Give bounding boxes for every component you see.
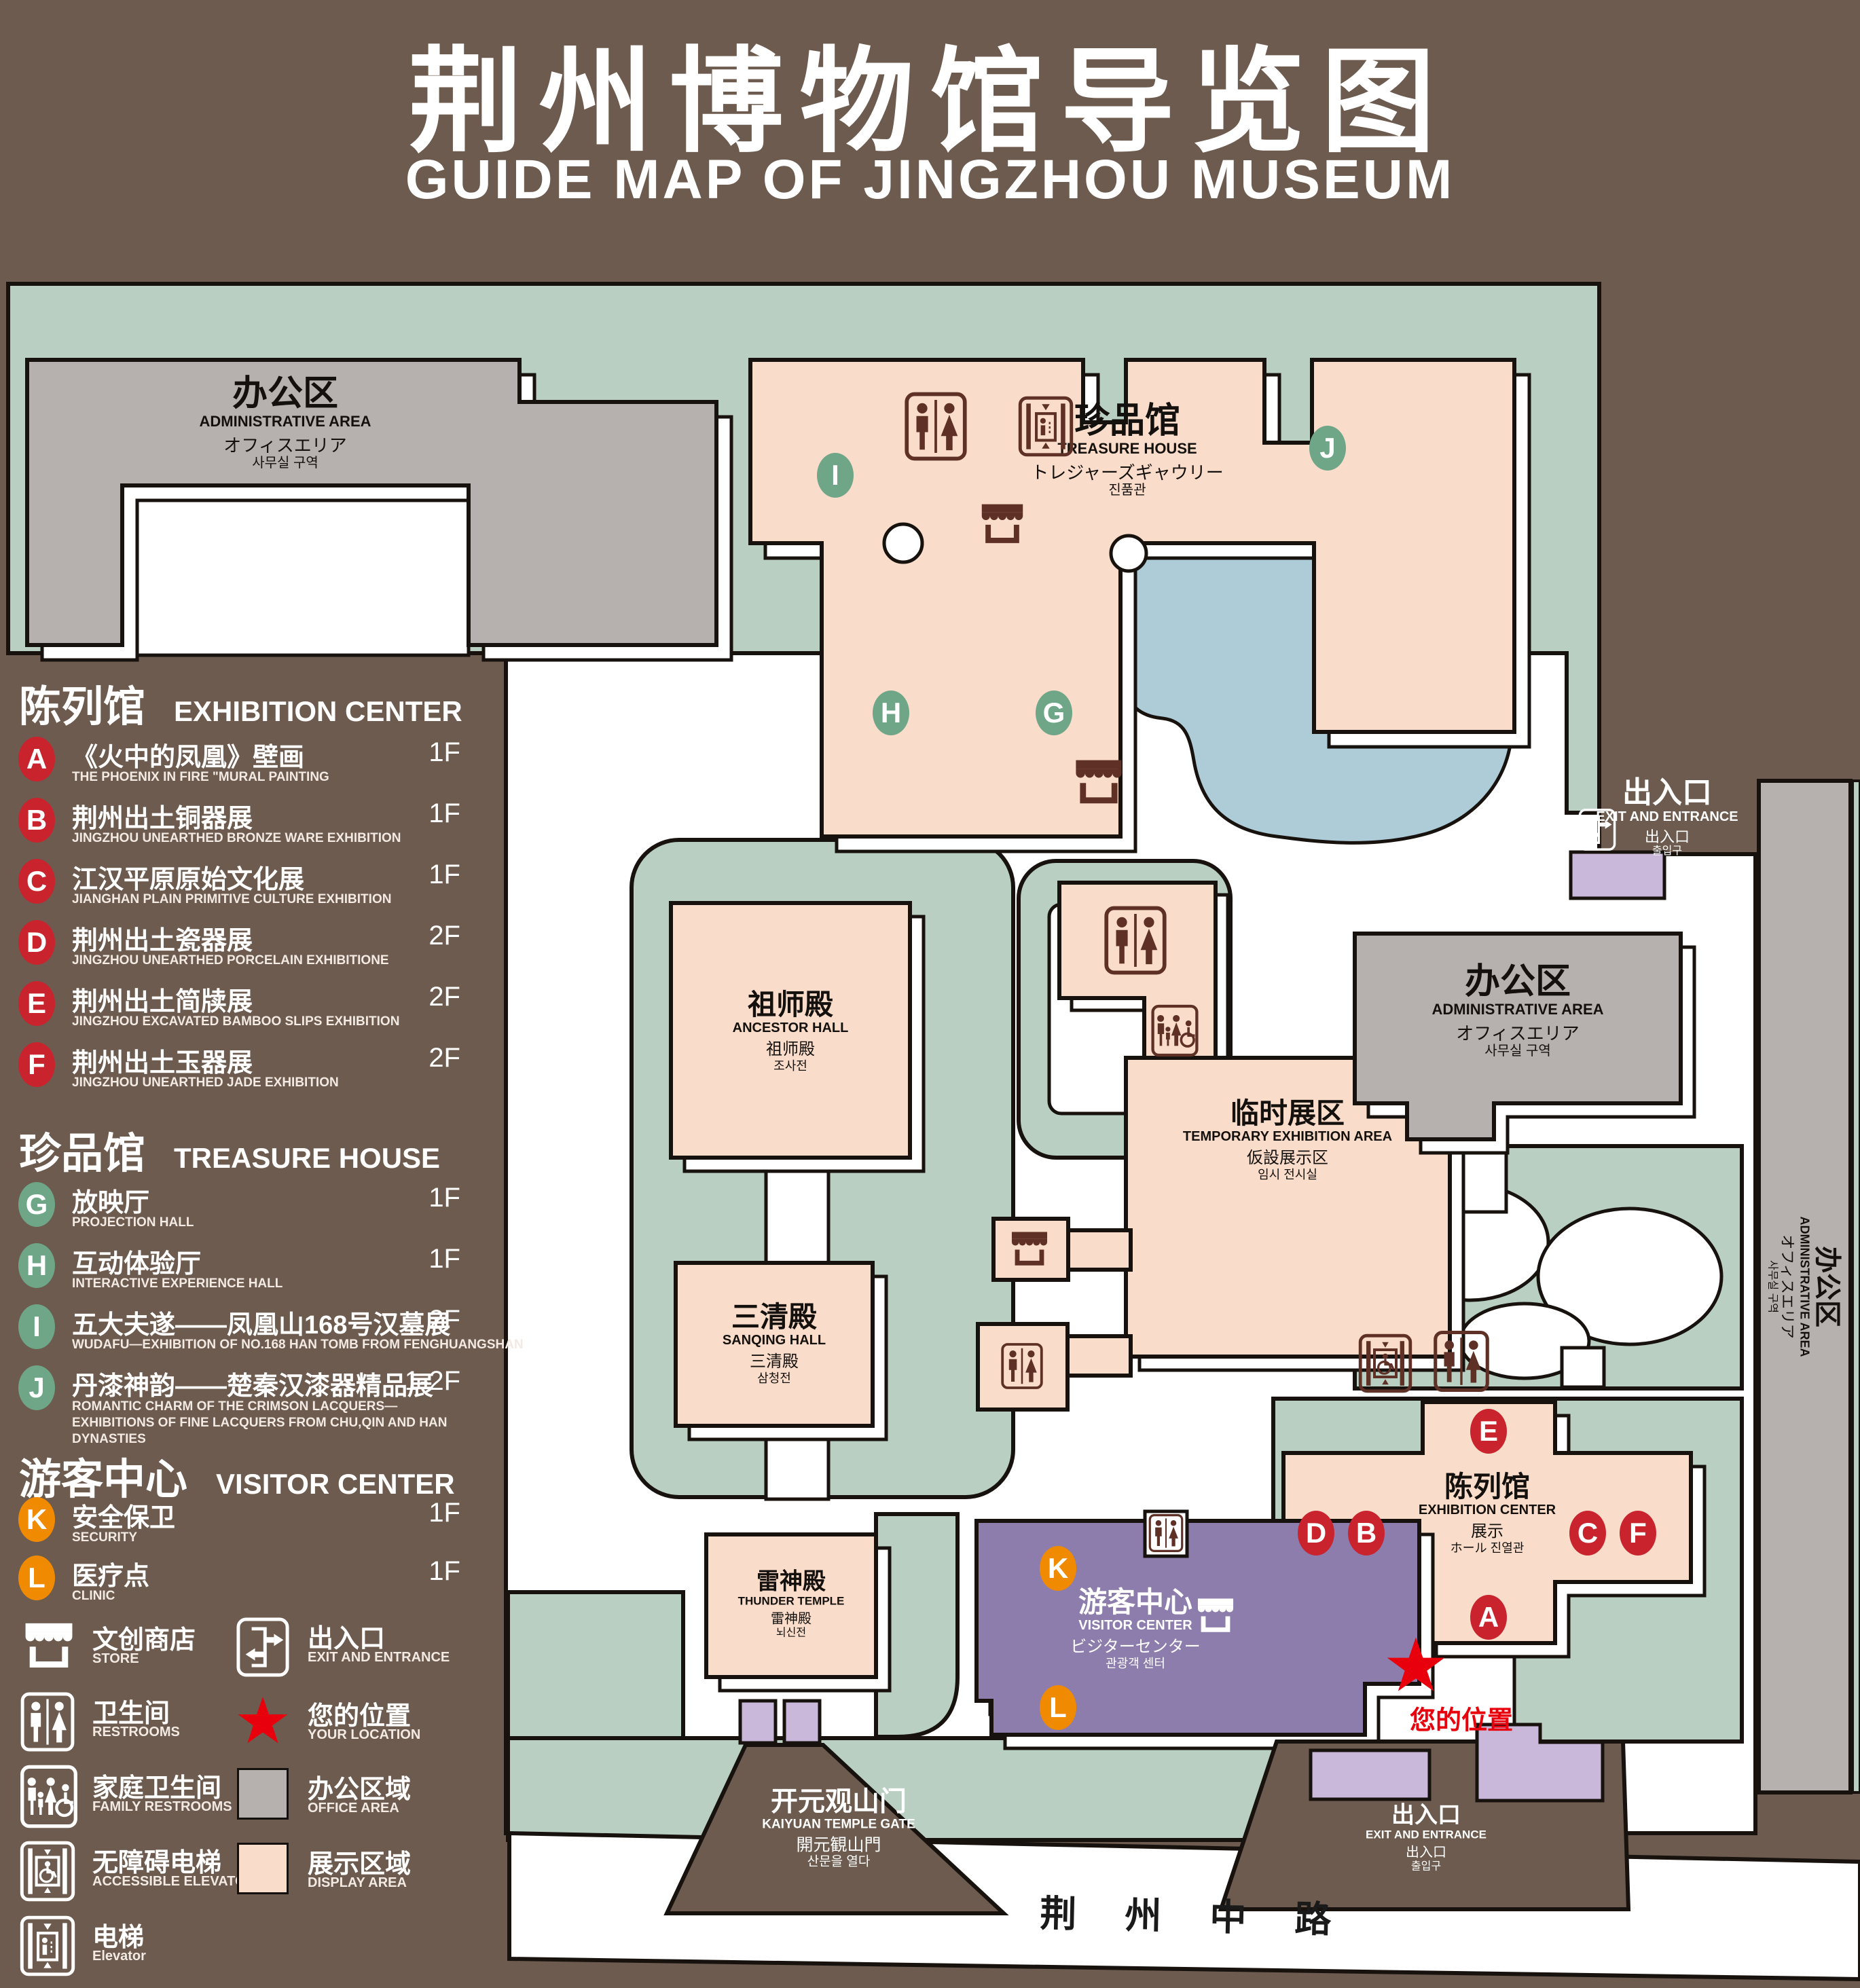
page-subtitle: GUIDE MAP OF JINGZHOU MUSEUM [0,148,1860,212]
exit-icon [1577,808,1618,851]
map-badge-c: C [1569,1511,1606,1556]
label-sanqing-hall: 三清殿SANQING HALL 三清殿삼청전 [723,1301,826,1385]
admin-courtyard [122,485,469,655]
green-right-sliver [1853,781,1860,1792]
your-location-star-icon [237,1695,289,1746]
legend-item-e: E 荆州出土简牍展 JINGZHOU EXCAVATED BAMBOO SLIP… [19,986,460,1048]
gate-pillar [740,1701,776,1743]
legend-section-treasure: 珍品馆TREASURE HOUSE [19,1119,440,1180]
floor-tag: 1F [428,1183,460,1213]
map-badge-l: L [1040,1685,1076,1730]
legend-item-i: I 五大夫遂——凤凰山168号汉墓展 WUDAFU—EXHIBITION OF … [19,1309,460,1372]
label-road: 荆 州 中 路 [1040,1883,1351,1944]
map-badge-f: F [1620,1511,1656,1556]
label-exit-bottom: 出入口EXIT AND ENTRANCE 出入口출입구 [1366,1802,1487,1872]
label-admin-left: 办公区ADMINISTRATIVE AREA オフィスエリア사무실 구역 [200,374,371,471]
floor-tag: 2F [428,1043,460,1073]
restroom-icon [1104,905,1168,976]
legend-item-g: G 放映厅 PROJECTION HALL 1F [19,1187,460,1249]
map-badge-g: G [1036,691,1072,735]
walkway [766,1158,828,1265]
family-restroom-icon [19,1764,79,1829]
legend-item-c: C 江汉平原原始文化展 JIANGHAN PLAIN PRIMITIVE CUL… [19,864,460,926]
elevator-icon [1018,395,1074,458]
badge-l: L [18,1556,55,1600]
map-badge-b: B [1348,1511,1385,1556]
restroom-icon [904,391,968,462]
map-badge-a: A [1470,1595,1507,1640]
floor-tag: 2F [428,982,460,1012]
legend-item-b: B 荆州出土铜器展 JINGZHOU UNEARTHED BRONZE WARE… [19,803,460,865]
legend-item-j: J 丹漆神韵——楚秦汉漆器精品展 ROMANTIC CHARM OF THE C… [19,1370,460,1433]
badge-b: B [18,798,55,843]
map-badge-k: K [1040,1546,1076,1591]
floor-tag: 1F [428,737,460,768]
your-location-star-icon [1386,1635,1446,1695]
store-icon [978,498,1027,547]
store-icon [1072,754,1126,808]
legend-item-d: D 荆州出土瓷器展 JINGZHOU UNEARTHED PORCELAIN E… [19,925,460,987]
legend-item-a: A 《火中的凤凰》壁画 THE PHOENIX IN FIRE "MURAL P… [19,741,460,804]
label-exhibition-center: 陈列馆EXHIBITION CENTER 展示ホール 진열관 [1419,1471,1556,1555]
label-ancestor-hall: 祖师殿ANCESTOR HALL 祖师殿조사전 [733,989,849,1073]
map-badge-d: D [1298,1511,1334,1556]
restroom-icon [20,1689,75,1754]
badge-j: J [18,1365,55,1410]
legend-item-f: F 荆州出土玉器展 JINGZHOU UNEARTHED JADE EXHIBI… [19,1047,460,1109]
plaza-dot [884,524,922,562]
temporary-wing [1066,1230,1131,1270]
floor-tag: 1F [428,1556,460,1587]
badge-g: G [18,1182,55,1227]
legend-section-exhibition: 陈列馆EXHIBITION CENTER [19,672,462,733]
badge-f: F [18,1042,55,1087]
office-area-swatch [237,1768,289,1820]
service-building [1311,1750,1429,1799]
badge-h: H [18,1243,55,1288]
floor-tag: 1F [428,798,460,829]
floor-tag: 2F [428,921,460,951]
pond-dot [1111,536,1146,571]
label-temporary-exhibition: 临时展区TEMPORARY EXHIBITION AREA 仮設展示区임시 전시… [1183,1097,1392,1181]
accessible-elevator-icon [20,1839,75,1904]
badge-c: C [18,859,55,904]
badge-a: A [18,737,55,781]
label-kaiyuan-gate: 开元观山门KAIYUAN TEMPLE GATE 開元観山門산문을 열다 [762,1786,915,1869]
label-admin-right: 办公区ADMINISTRATIVE AREA オフィスエリア사무실 구역 [1432,962,1604,1059]
badge-i: I [18,1304,55,1349]
accessible-elevator-icon [1358,1333,1412,1394]
garden-path [1562,1348,1604,1387]
guide-map-poster: 荆州博物馆导览图 GUIDE MAP OF JINGZHOU MUSEUM 办公… [0,0,1860,1988]
label-admin-road: 办公区ADMINISTRATIVE AREA オフィスエリア사무실 구역 [1766,1217,1842,1357]
gate-pillar [784,1701,820,1743]
store-icon [1195,1594,1237,1636]
map-badge-j: J [1309,426,1346,471]
exit-icon [235,1615,291,1679]
temporary-wing [1066,1336,1131,1376]
restroom-icon [1000,1342,1044,1391]
display-area-swatch [237,1843,289,1894]
floor-tag: 1F [428,1244,460,1274]
badge-d: D [18,920,55,965]
label-thunder-temple: 雷神殿THUNDER TEMPLE 雷神殿뇌신전 [738,1568,845,1638]
floor-tag: 2F [428,1305,460,1336]
family-restroom-icon [1150,1004,1199,1058]
floor-tag: 1F [428,1498,460,1528]
map-badge-i: I [817,453,854,498]
legend-item-h: H 互动体验厅 INTERACTIVE EXPERIENCE HALL 1F [19,1248,460,1310]
store-icon [1008,1227,1051,1269]
legend-item-l: L 医疗点 CLINIC 1F [19,1560,460,1623]
store-icon [19,1617,79,1672]
restroom-icon [1433,1329,1491,1394]
green-bottom-left [508,1592,683,1742]
badge-e: E [18,981,55,1026]
label-visitor-center: 游客中心VISITOR CENTER ビジターセンター관광객 센터 [1070,1586,1201,1670]
service-building [1571,852,1664,898]
floor-tag: 1F [428,860,460,890]
map-badge-h: H [873,691,909,735]
restroom-icon [1148,1513,1184,1553]
map-badge-e: E [1470,1409,1507,1454]
badge-k: K [18,1497,55,1542]
floor-tag: 1-2F [405,1366,460,1397]
label-your-location: 您的位置 [1410,1699,1513,1737]
elevator-icon [20,1913,75,1978]
